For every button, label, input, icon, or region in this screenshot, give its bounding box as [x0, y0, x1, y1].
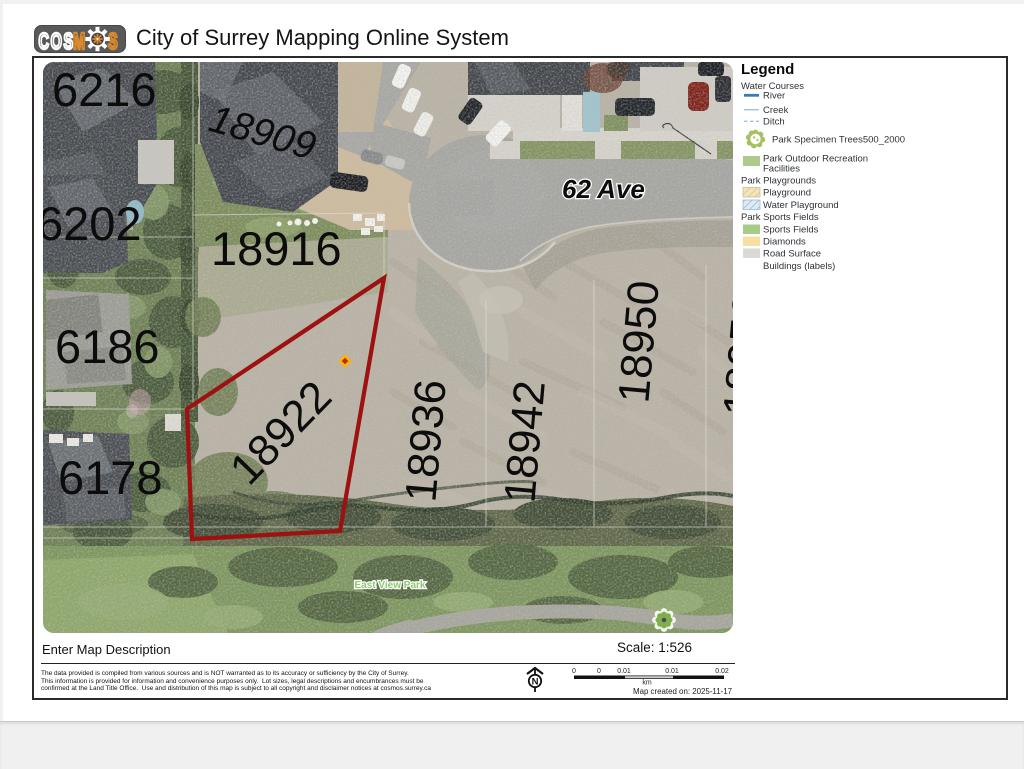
- svg-text:Park Sports Fields: Park Sports Fields: [741, 212, 819, 223]
- svg-text:62 Ave: 62 Ave: [562, 174, 645, 204]
- svg-text:6216: 6216: [52, 63, 157, 116]
- svg-text:Road Surface: Road Surface: [763, 249, 821, 260]
- svg-text:Water Playground: Water Playground: [763, 200, 839, 211]
- svg-text:0.01: 0.01: [665, 668, 679, 675]
- svg-text:Ditch: Ditch: [763, 117, 785, 128]
- svg-text:River: River: [763, 91, 785, 102]
- svg-text:East View Park: East View Park: [355, 580, 426, 591]
- svg-text:0: 0: [572, 668, 576, 675]
- svg-text:Diamonds: Diamonds: [763, 237, 806, 248]
- svg-text:Park Playgrounds: Park Playgrounds: [741, 176, 816, 187]
- svg-text:km: km: [642, 680, 652, 687]
- svg-text:COS: COS: [39, 29, 75, 53]
- svg-text:Legend: Legend: [741, 61, 794, 78]
- svg-text:0.02: 0.02: [715, 668, 729, 675]
- svg-text:Creek: Creek: [763, 105, 789, 116]
- svg-text:0: 0: [597, 668, 601, 675]
- svg-text:Sports Fields: Sports Fields: [763, 225, 819, 236]
- svg-text:18916: 18916: [211, 222, 342, 275]
- svg-text:6186: 6186: [55, 320, 160, 373]
- svg-text:6202: 6202: [43, 197, 142, 250]
- svg-text:0.01: 0.01: [617, 668, 631, 675]
- svg-text:M: M: [73, 29, 85, 53]
- svg-text:Facilities: Facilities: [763, 164, 800, 175]
- svg-text:Playground: Playground: [763, 188, 811, 199]
- svg-text:Park Specimen Trees500_2000: Park Specimen Trees500_2000: [772, 135, 905, 146]
- svg-text:N: N: [532, 677, 539, 688]
- svg-text:6178: 6178: [58, 451, 163, 504]
- svg-text:Buildings (labels): Buildings (labels): [763, 261, 835, 272]
